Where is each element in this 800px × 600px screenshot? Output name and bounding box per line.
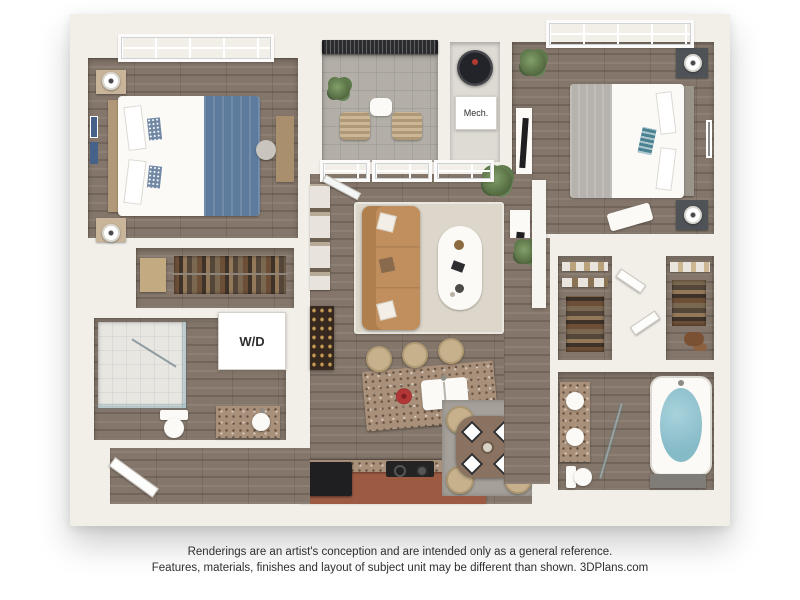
flower-bowl — [395, 388, 412, 405]
disclaimer-line-2: Features, materials, finishes and layout… — [0, 560, 800, 576]
table-decor — [451, 260, 465, 273]
bench — [606, 202, 653, 231]
shower-glass — [98, 405, 186, 408]
mech-label: Mech. — [455, 96, 497, 130]
hanging-clothes — [672, 280, 706, 326]
hanging-clothes — [566, 296, 604, 352]
bar-cabinet — [310, 306, 334, 370]
page: { "labels": { "mech": "Mech.", "washer_d… — [0, 0, 800, 600]
bed-1-mattress — [118, 96, 260, 216]
centerpiece — [483, 443, 492, 452]
disclaimer: Renderings are an artist's conception an… — [0, 544, 800, 576]
burner — [394, 465, 406, 477]
hall-shelving — [310, 184, 330, 290]
hanging-clothes — [174, 256, 286, 294]
wall-art-frame — [706, 120, 712, 158]
bed-2-blanket — [570, 84, 612, 198]
sink — [252, 413, 270, 431]
lamp — [102, 72, 120, 90]
table-decor — [455, 284, 464, 293]
shower-door — [131, 338, 176, 367]
living-kitchen-floor — [310, 174, 532, 504]
lamp — [102, 224, 120, 242]
bed-1-blanket — [204, 96, 260, 216]
entry-floor — [110, 448, 310, 504]
walk-in-closet-1-floor — [558, 256, 612, 360]
bed-1-accent-pillow — [147, 117, 162, 140]
bed-2-pillow — [656, 147, 677, 191]
patio-chair — [392, 112, 422, 140]
bed-1-pillow — [123, 105, 146, 151]
mech-label-text: Mech. — [464, 108, 489, 118]
shower-glass — [183, 322, 186, 408]
closet-1-floor — [136, 248, 294, 308]
entry-door — [109, 457, 159, 498]
balcony-floor — [322, 54, 438, 162]
closet-shelf — [562, 278, 608, 287]
table-decor — [454, 240, 464, 250]
closet-shelf — [562, 262, 608, 271]
wall-art-frames — [90, 116, 98, 138]
closet-shelf — [670, 262, 710, 272]
potted-plant — [328, 78, 350, 100]
water-heater — [457, 50, 493, 86]
refrigerator — [308, 462, 352, 496]
luggage — [684, 332, 704, 346]
faucet — [260, 408, 265, 413]
toilet-bowl — [574, 468, 592, 486]
bathtub-water — [660, 388, 702, 462]
bathtub — [650, 376, 712, 476]
lamp — [684, 206, 702, 224]
lamp — [684, 54, 702, 72]
sink — [566, 392, 584, 410]
sofa — [362, 206, 420, 330]
bed-2-accent-pillow — [637, 127, 656, 155]
bar-stool — [438, 338, 464, 364]
floorplan: Mech. — [70, 14, 730, 526]
closet-rod — [172, 273, 288, 275]
vanity-counter — [560, 382, 590, 462]
disclaimer-line-2-text: Features, materials, finishes and layout… — [152, 562, 577, 574]
potted-plant — [520, 50, 546, 76]
bedroom-1-window — [118, 34, 274, 62]
tv-wall — [532, 180, 546, 308]
living-window — [434, 160, 494, 182]
bedroom-2-window — [546, 20, 694, 48]
brand-text: 3DPlans.com — [580, 562, 648, 574]
disclaimer-line-1: Renderings are an artist's conception an… — [0, 544, 800, 560]
faucet — [678, 380, 684, 386]
patio-table — [370, 98, 392, 116]
mech-closet-floor: Mech. — [450, 42, 500, 162]
balcony-railing — [322, 40, 438, 54]
shower — [98, 322, 186, 408]
faucet — [440, 375, 447, 382]
vanity-counter — [216, 406, 280, 438]
storage-box — [140, 258, 166, 292]
coffee-table — [438, 226, 482, 310]
cooktop — [386, 461, 434, 477]
bedroom-1-floor — [88, 58, 298, 238]
place-setting — [461, 453, 484, 476]
bed-1-accent-pillow — [147, 165, 162, 188]
living-window — [372, 160, 432, 182]
desk-chair — [256, 140, 276, 160]
washer-dryer-unit: W/D — [218, 312, 286, 370]
sofa-pillow — [376, 212, 397, 233]
water-heater-valve — [472, 59, 478, 65]
patio-chair — [340, 112, 370, 140]
sofa-pillow — [379, 257, 396, 274]
bed-2-mattress — [570, 84, 684, 198]
washer-dryer-label: W/D — [239, 334, 264, 349]
bar-stool — [402, 342, 428, 368]
bar-stool — [366, 346, 392, 372]
bed-1-pillow — [123, 159, 146, 205]
closet-door — [616, 268, 646, 293]
closet-door — [630, 310, 660, 335]
sink — [566, 428, 584, 446]
bathroom-2-floor — [558, 372, 714, 490]
bed-2-pillow — [656, 91, 677, 135]
walk-in-closet-2-floor — [666, 256, 714, 360]
vanity-cabinet — [650, 474, 706, 488]
desk — [276, 116, 294, 182]
sofa-pillow — [376, 300, 397, 321]
toilet-bowl — [164, 418, 184, 438]
shower-glass — [599, 403, 622, 479]
place-setting — [461, 421, 484, 444]
